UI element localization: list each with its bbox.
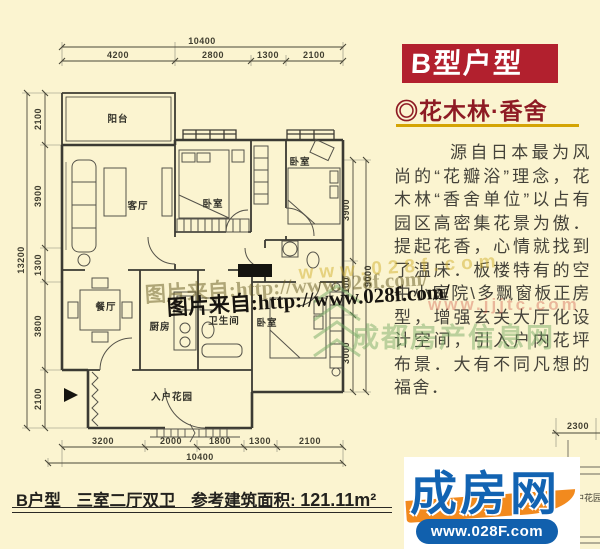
dim-adjacent: 2300 (567, 421, 589, 431)
dim-top-2: 2800 (202, 50, 224, 60)
bathroom-upper-fixtures (282, 241, 319, 268)
room-living: 客厅 (126, 200, 148, 212)
sofa (72, 160, 96, 252)
caption-double-rule (12, 507, 392, 513)
room-entry-garden: 入户花园 (150, 391, 193, 403)
room-balcony: 阳台 (107, 113, 128, 125)
logo-site-name: 成房网 (410, 455, 560, 524)
chengfang-logo: 成房网 www.028F.com (404, 457, 580, 549)
dim-left-total: 13200 (16, 246, 26, 274)
unit-type-title-box: B型户型 (402, 44, 558, 83)
room-bathroom: 卫生间 (208, 315, 240, 327)
project-name: ◎花木林·香舍 (395, 92, 548, 126)
room-kitchen: 厨房 (149, 321, 170, 333)
dim-bottom-2: 2000 (160, 436, 182, 446)
logo-site-url: www.028F.com (416, 519, 558, 544)
dim-left-5: 2100 (33, 388, 43, 410)
bay-windows (183, 130, 334, 140)
dim-bottom-total: 10400 (186, 452, 214, 462)
dim-top-1: 4200 (107, 50, 129, 60)
bathroom-lower-fixtures (200, 298, 242, 357)
hall-closet (254, 146, 268, 204)
description-paragraph: 源自日本最为风尚的“花瓣浴”理念，花木林“香舍单位”以占有园区高密集花景为傲．提… (394, 141, 591, 400)
dim-left-2: 3900 (33, 185, 43, 207)
gold-underline (396, 124, 579, 127)
dim-right-total: 9000 (363, 265, 373, 287)
room-labels: 阳台 客厅 卧室 卧室 餐厅 厨房 卫生间 卧室 入户花园 (94, 113, 310, 403)
wardrobe-1 (177, 219, 249, 232)
bed-3 (270, 298, 326, 358)
dim-bottom-4: 1300 (249, 436, 271, 446)
room-bedroom-2: 卧室 (289, 156, 310, 168)
furniture (68, 139, 342, 442)
tv-cabinet (162, 168, 172, 216)
dim-top-3: 1300 (257, 50, 279, 60)
dim-top-4: 2100 (303, 50, 325, 60)
floor-lamp (78, 254, 90, 266)
room-bedroom-3: 卧室 (256, 317, 277, 329)
dim-left-3: 1300 (33, 254, 43, 276)
unit-type-title: B型户型 (401, 44, 559, 83)
dim-bottom-3: 1800 (209, 436, 231, 446)
dim-left-4: 3800 (33, 315, 43, 337)
garden-zigzag (92, 372, 98, 426)
coffee-table (104, 168, 126, 216)
kitchen-counter (174, 292, 196, 350)
brochure-page: 10400 4200 2800 1300 2100 13200 2100 390… (0, 0, 600, 549)
entry-door-block (238, 264, 272, 277)
dim-left-1: 2100 (33, 108, 43, 130)
bed-2 (288, 139, 340, 224)
dim-bottom-5: 2100 (299, 436, 321, 446)
room-dining: 餐厅 (94, 301, 116, 313)
room-bedroom-1: 卧室 (202, 198, 223, 210)
entry-arrow (64, 388, 78, 402)
dim-bottom-1: 3200 (92, 436, 114, 446)
dim-top-total: 10400 (188, 36, 216, 46)
